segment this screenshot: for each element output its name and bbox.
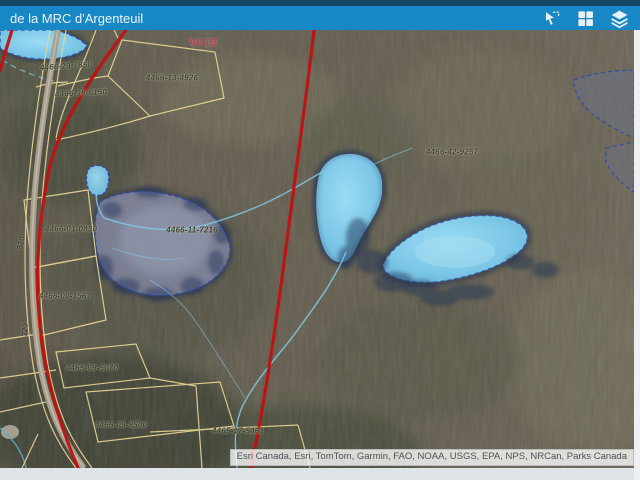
map-canvas (0, 30, 634, 468)
page-margin-bottom (0, 468, 634, 480)
app-title: de la MRC d'Argenteuil (0, 11, 143, 26)
map-viewport[interactable]: VI-184466-29-78504466-35-61504466-13-492… (0, 30, 634, 468)
app-header: de la MRC d'Argenteuil (0, 6, 640, 30)
map-attribution: Esri Canada, Esri, TomTom, Garmin, FAO, … (230, 449, 634, 466)
pond (87, 166, 109, 196)
layers-icon[interactable] (608, 7, 630, 29)
header-toolbar (540, 7, 640, 29)
draw-tool-icon[interactable] (540, 7, 562, 29)
app-window: de la MRC d'Argenteuil (0, 0, 640, 480)
basemap-grid-icon[interactable] (574, 7, 596, 29)
page-margin-right (634, 30, 640, 480)
